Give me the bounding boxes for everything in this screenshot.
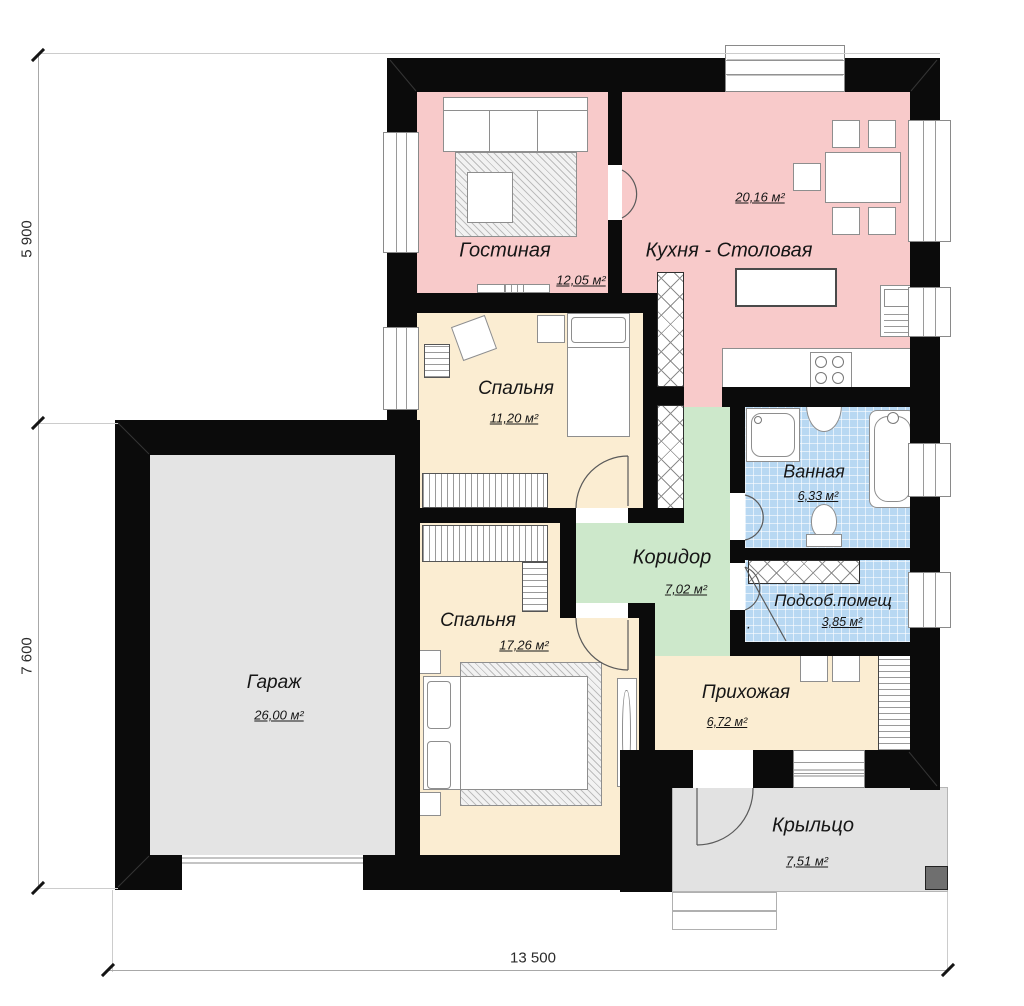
sofa (443, 97, 588, 152)
room-area-corridor: 7,02 м² (665, 582, 707, 597)
garage-door-opening (182, 855, 363, 890)
window (908, 443, 951, 497)
wall (115, 420, 420, 455)
dining-table (825, 152, 901, 203)
porch-step (672, 911, 777, 930)
fridge-top (884, 289, 909, 307)
bed-headboard-line (460, 676, 461, 790)
wall (639, 615, 655, 752)
room-area-hall: 6,72 м² (707, 715, 748, 729)
wall (560, 523, 576, 615)
room-label-kitchen: Кухня - Столовая (646, 240, 813, 263)
wall (722, 387, 940, 407)
wall (395, 455, 420, 855)
toilet-tank (806, 534, 842, 547)
wall (643, 313, 657, 523)
room-garage-fill (150, 455, 395, 855)
window (793, 750, 865, 788)
dining-chair (832, 207, 860, 235)
wall (730, 548, 917, 560)
door-opening-utility (730, 563, 745, 610)
room-label-porch: Крыльцо (772, 815, 854, 838)
entrance-door-opening (693, 750, 753, 788)
sofa-back-line (443, 110, 588, 111)
room-area-bedroom1: 11,20 м² (490, 411, 538, 426)
room-corridor-arm-fill (684, 407, 730, 523)
hall-wardrobe (878, 654, 913, 751)
porch-pillar (925, 866, 948, 890)
room-label-bedroom1: Спальня (478, 378, 554, 400)
room-area-porch: 7,51 м² (786, 854, 828, 869)
dresser (424, 344, 450, 378)
room-kitchen-passage-fill (684, 350, 722, 407)
dimension-label-width: 13 500 (510, 950, 556, 967)
hall-cabinet (832, 655, 860, 682)
bathtub-faucet (887, 412, 899, 424)
door-opening-bedroom1 (576, 508, 628, 523)
wall (115, 420, 150, 890)
wardrobe (522, 562, 548, 612)
dining-chair (832, 120, 860, 148)
stove-burner (832, 372, 844, 384)
room-hall-fill (655, 656, 910, 752)
bed-line (567, 347, 630, 348)
window (908, 287, 951, 337)
wardrobe (422, 473, 548, 508)
dimension-label-height-upper: 5 900 (19, 220, 36, 258)
room-label-hall: Прихожая (702, 682, 790, 704)
extension-line (38, 423, 118, 424)
room-area-bathroom: 6,33 м² (798, 489, 839, 503)
window (383, 132, 419, 253)
nightstand (417, 650, 441, 674)
dining-chair (868, 120, 896, 148)
window (908, 120, 951, 242)
wall (643, 387, 684, 405)
window (383, 327, 419, 410)
shower-drain (754, 416, 762, 424)
door-opening-bathroom (730, 493, 745, 540)
room-label-corridor: Коридор (633, 547, 711, 570)
door-opening-bedroom2 (576, 603, 628, 618)
dining-chair (793, 163, 821, 191)
extension-line (112, 890, 113, 972)
fridge-vent (884, 311, 909, 333)
dimension-line-vertical-upper (38, 55, 39, 423)
dimension-line-horizontal (108, 970, 948, 971)
coffee-table (467, 172, 513, 223)
utility-shelves (748, 560, 860, 584)
wall (417, 293, 657, 313)
extension-line (947, 892, 948, 972)
room-area-utility: 3,85 м² (822, 615, 863, 629)
extension-line (38, 888, 118, 889)
sofa-divider (537, 110, 538, 152)
dimension-line-vertical-lower (38, 423, 39, 888)
room-area-kitchen: 20,16 м² (735, 190, 784, 205)
stove-burner (815, 372, 827, 384)
pantry-cabinet (657, 272, 684, 387)
bed-pillow (427, 681, 451, 729)
room-area-living: 12,05 м² (556, 273, 605, 288)
room-label-garage: Гараж (247, 672, 301, 694)
room-label-bedroom2: Спальня (440, 610, 516, 632)
corridor-closet (657, 405, 684, 513)
room-label-utility: Подсоб.помещ (774, 591, 892, 611)
toilet-bowl (811, 504, 837, 538)
wall (730, 642, 940, 656)
stove-burner (815, 356, 827, 368)
window (908, 572, 951, 628)
sofa-divider (489, 110, 490, 152)
dimension-label-height-lower: 7 600 (19, 637, 36, 675)
room-area-bedroom2: 17,26 м² (499, 638, 548, 653)
porch-step (672, 892, 777, 911)
bathtub-inner (874, 416, 911, 502)
kitchen-island (735, 268, 837, 307)
room-porch-fill (672, 787, 948, 892)
wall (387, 58, 940, 92)
extension-line (38, 53, 940, 54)
tv-set (504, 284, 524, 293)
room-corridor-low-fill (655, 603, 730, 656)
dining-chair (868, 207, 896, 235)
room-label-bathroom: Ванная (783, 462, 844, 483)
door-opening-living-kitchen (608, 165, 622, 220)
room-area-garage: 26,00 м² (254, 708, 303, 723)
wall (417, 508, 684, 523)
room-label-living: Гостиная (459, 240, 550, 263)
wardrobe (422, 525, 548, 562)
hall-cabinet (800, 655, 828, 682)
nightstand (537, 315, 565, 343)
stove-burner (832, 356, 844, 368)
room-label-utility-period: . (747, 616, 751, 633)
bed-pillow (571, 317, 626, 343)
wall (397, 855, 640, 890)
bed-pillow (427, 741, 451, 789)
floor-plan: 5 900 7 600 13 500 Гостиная 12,05 м² Кух… (0, 0, 1024, 1006)
nightstand (417, 792, 441, 816)
